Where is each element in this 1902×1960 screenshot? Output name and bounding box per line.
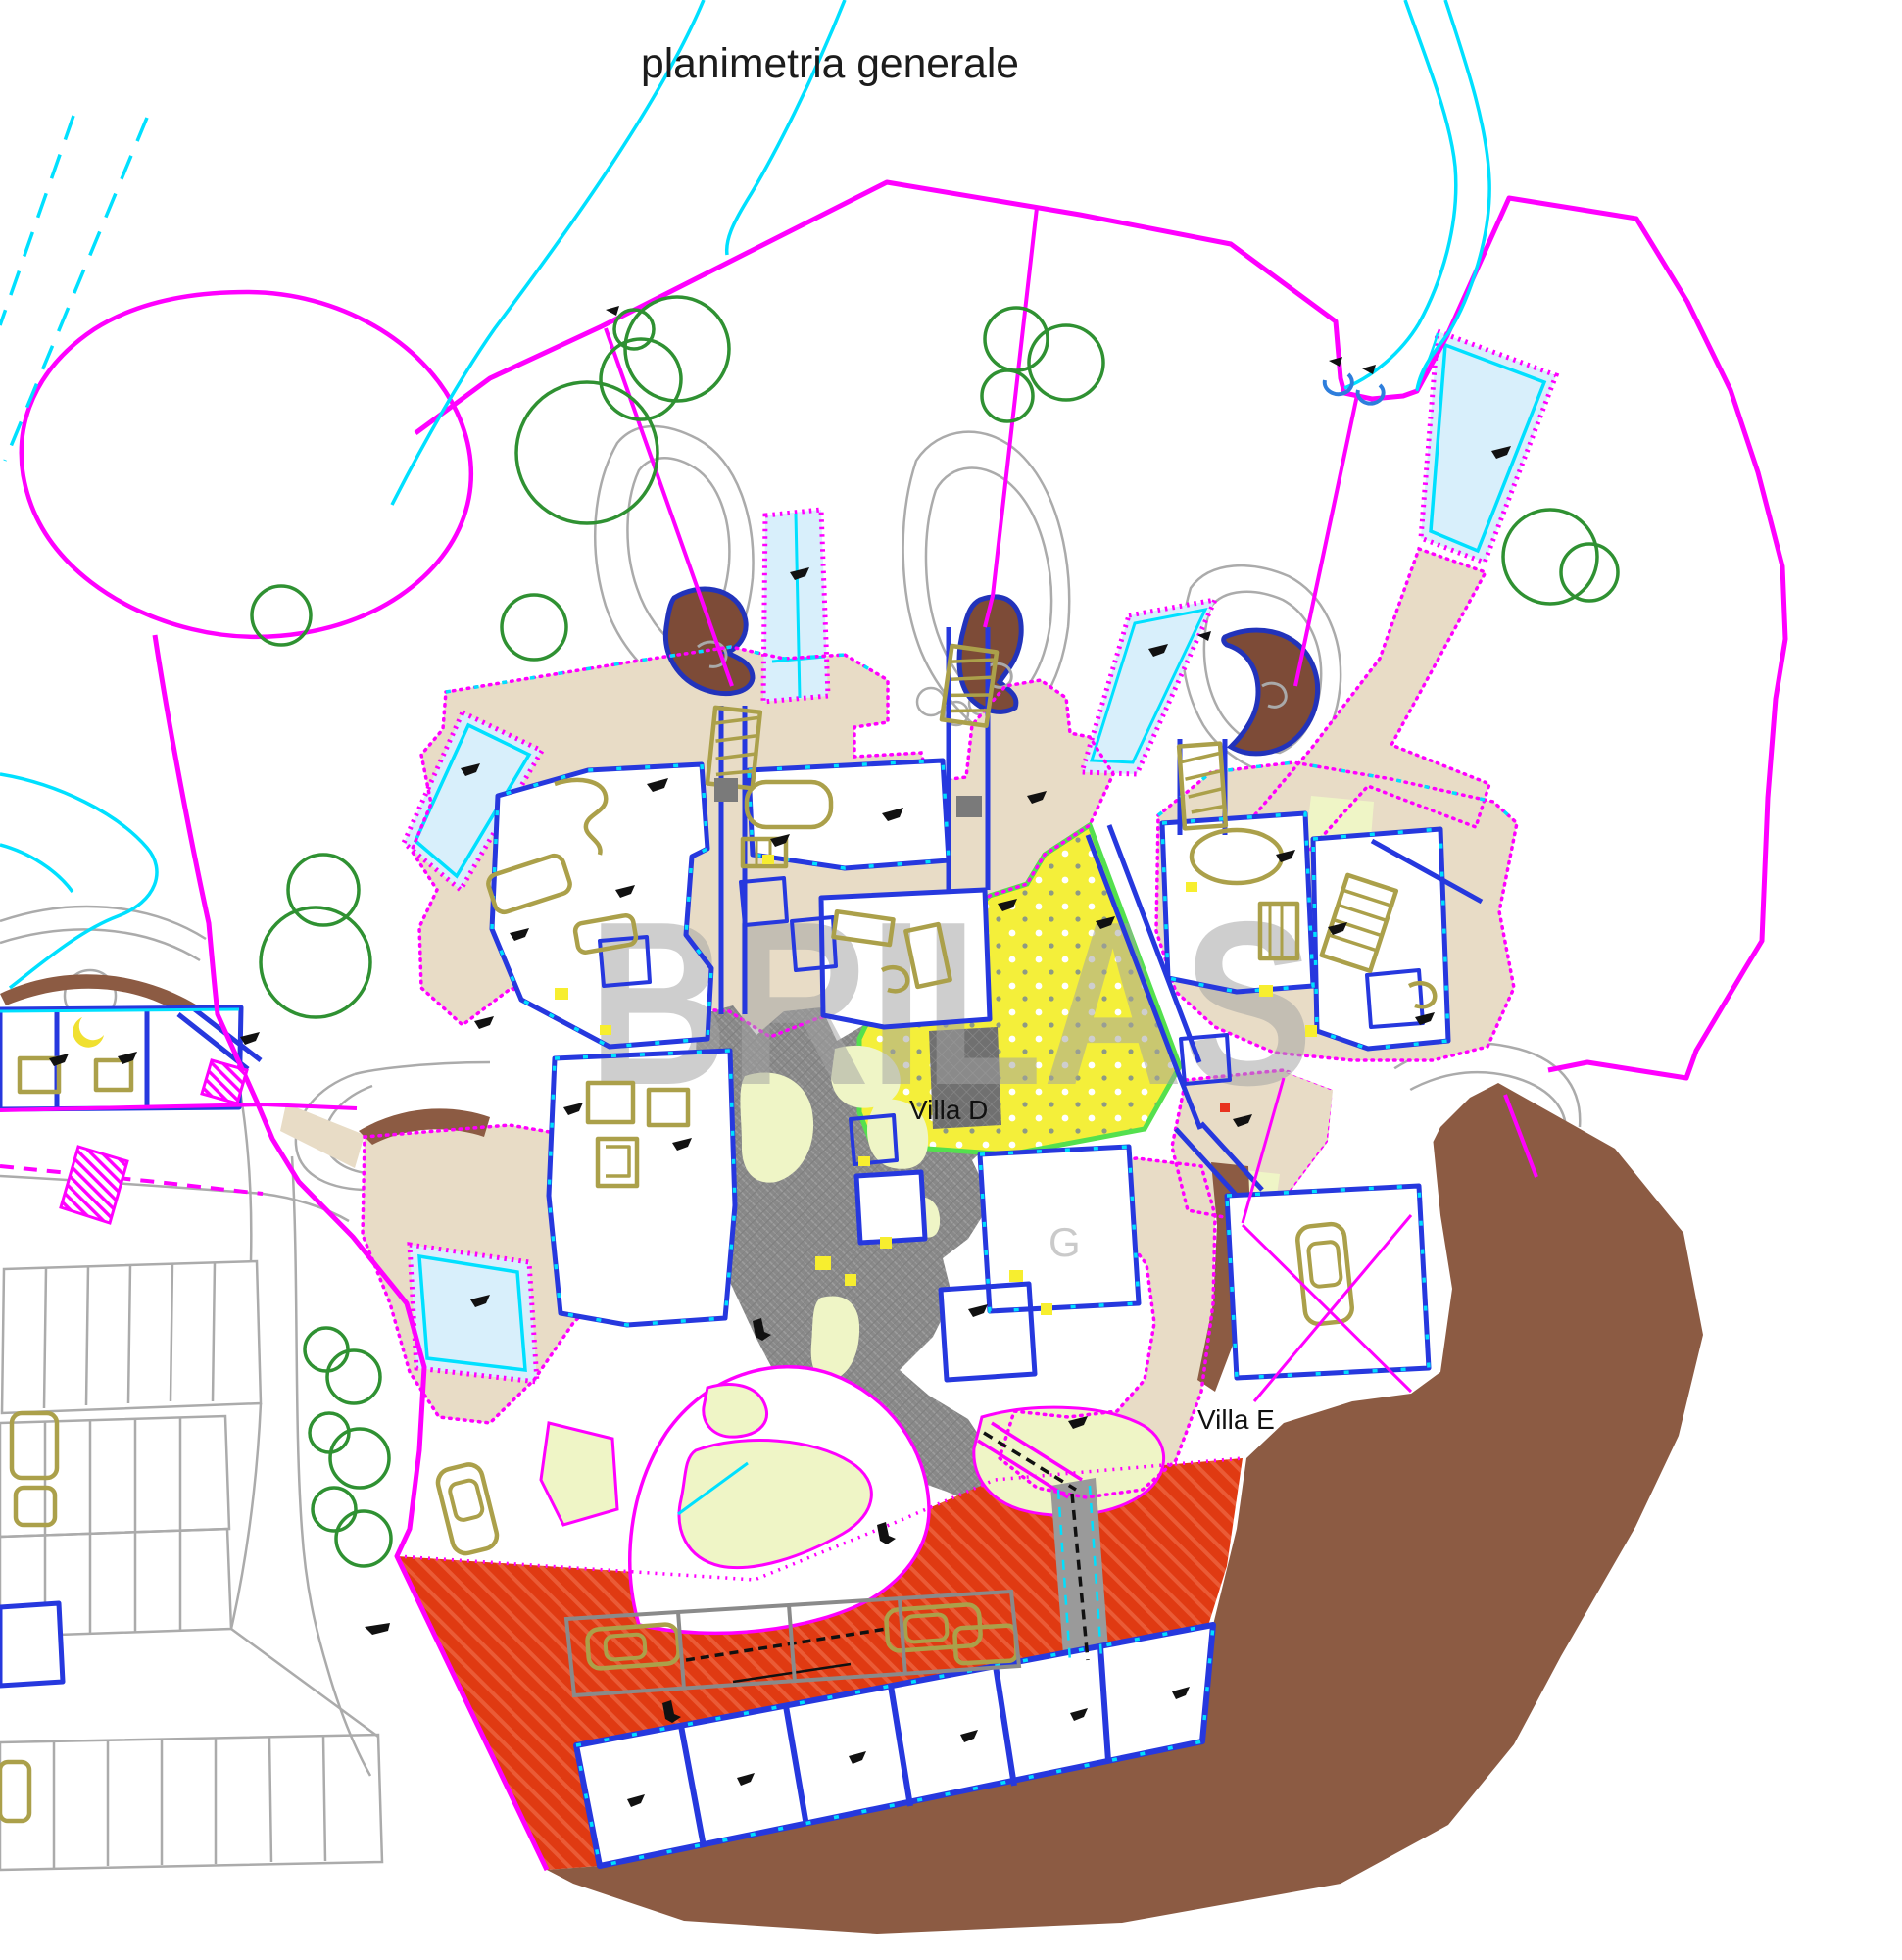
svg-text:Villa E: Villa E [1197,1404,1275,1435]
svg-text:Villa D: Villa D [909,1095,988,1125]
svg-text:G: G [1049,1219,1081,1265]
svg-text:planimetria generale: planimetria generale [641,40,1019,87]
